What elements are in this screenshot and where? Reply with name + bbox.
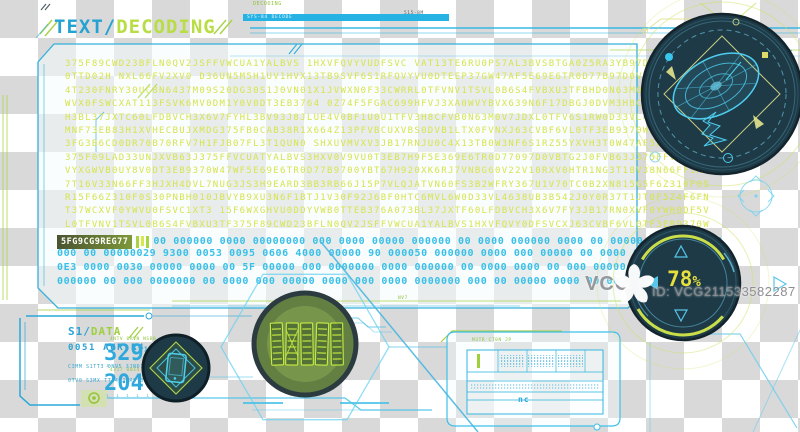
smartphone-icon xyxy=(166,353,187,383)
watermark-id: ID: VCG211533582287 xyxy=(652,284,796,299)
hud-decoding-graphic: TEXT/DECODING DECODING 515-8M SYS-84 DEC… xyxy=(0,0,800,432)
servers-circle xyxy=(254,293,356,395)
hud-widgets-layer xyxy=(0,0,800,432)
radar-circle xyxy=(619,0,800,197)
phone-circle xyxy=(143,335,209,401)
target-reticle-icon xyxy=(738,176,774,216)
vcg-logo-icon xyxy=(612,262,656,308)
server-rack-icon xyxy=(270,323,343,365)
